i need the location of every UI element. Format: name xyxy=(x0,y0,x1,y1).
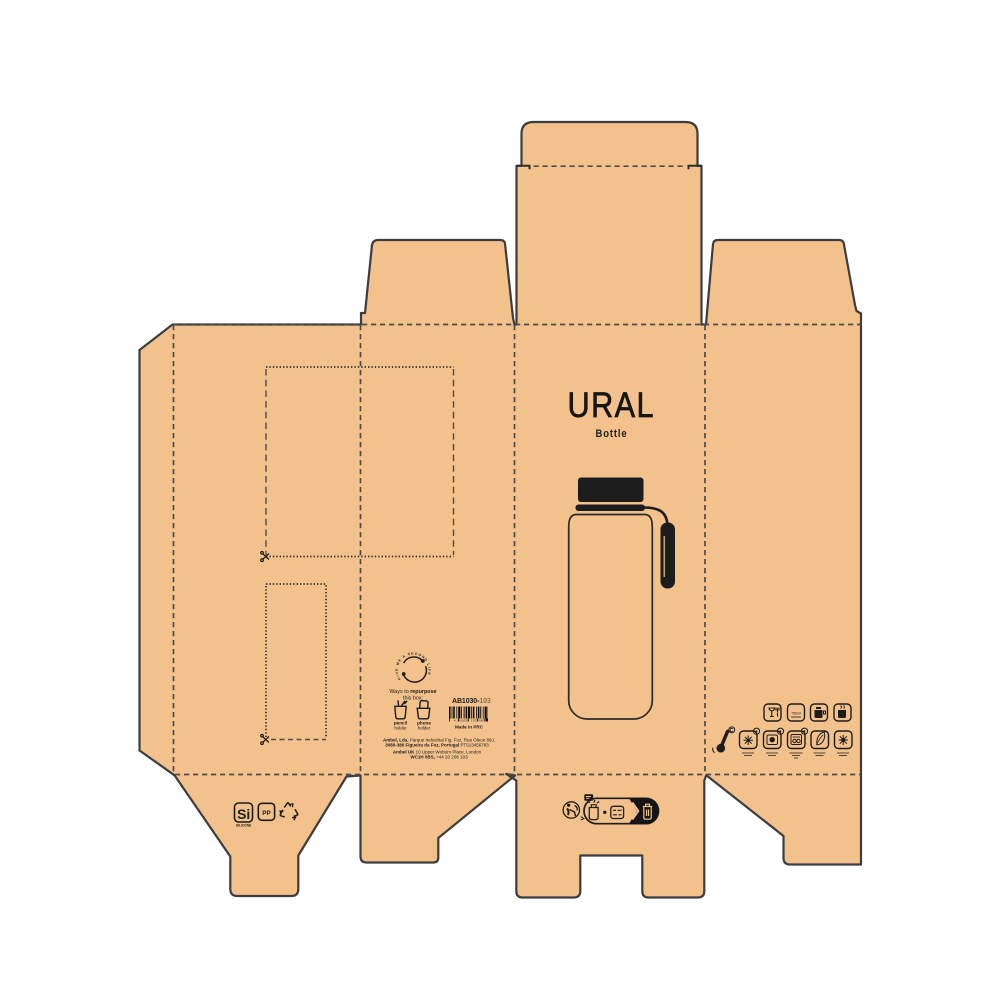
svg-text:holder: holder xyxy=(418,726,431,731)
svg-text:PP: PP xyxy=(262,810,270,817)
svg-text:Si: Si xyxy=(237,806,250,822)
svg-text:Bottle: Bottle xyxy=(596,428,628,440)
svg-text:Ways to repurpose: Ways to repurpose xyxy=(389,689,436,695)
svg-text:AB1030-103: AB1030-103 xyxy=(452,698,491,705)
svg-text:WC1H 0BS, +44 20 206 103: WC1H 0BS, +44 20 206 103 xyxy=(410,755,468,760)
svg-text:4 260050 103098: 4 260050 103098 xyxy=(454,719,483,723)
svg-text:750ml: 750ml xyxy=(791,712,801,716)
svg-text:SILICONE: SILICONE xyxy=(236,823,252,827)
svg-text:URAL: URAL xyxy=(568,386,656,425)
svg-text:3080-380 Figueira da Foz, Port: 3080-380 Figueira da Foz, Portugal PT513… xyxy=(385,743,489,748)
svg-text:holder: holder xyxy=(394,726,407,731)
svg-text:Made in PRC: Made in PRC xyxy=(455,725,484,730)
